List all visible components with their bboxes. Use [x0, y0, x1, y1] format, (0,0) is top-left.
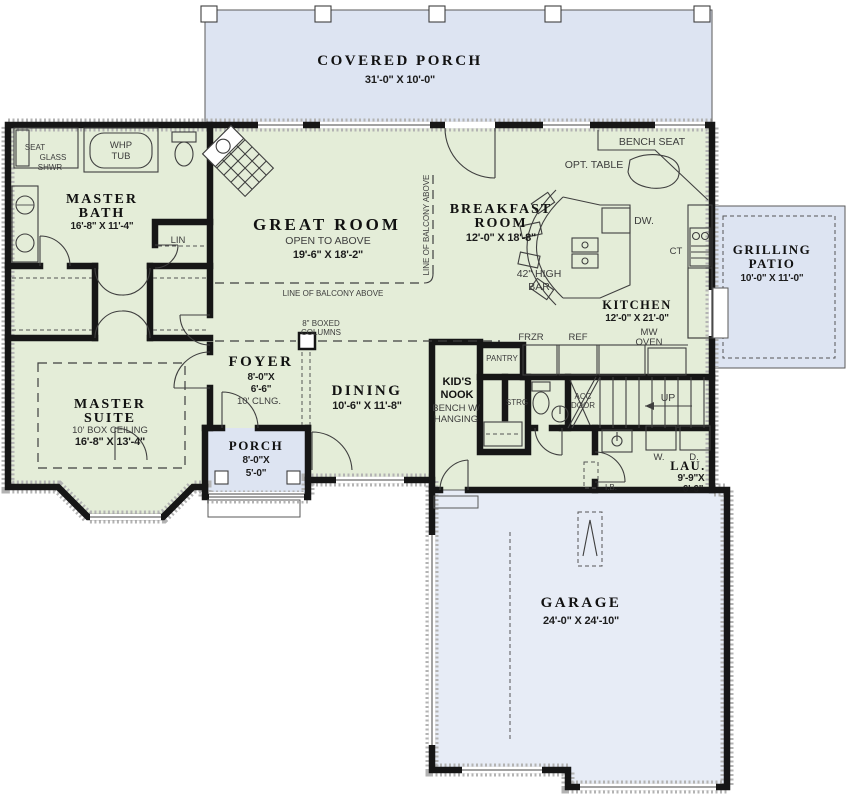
kitchen-dims: 12'-0" X 21'-0": [605, 313, 669, 324]
breakfast-dims: 12'-0" X 18'-8": [466, 232, 536, 244]
foyer-label: FOYER: [229, 354, 294, 370]
porch-dims-2: 5'-0": [246, 468, 267, 479]
dining-label: DINING: [332, 383, 403, 399]
acc-label-1: ACC: [575, 392, 592, 401]
up-label: UP: [661, 392, 676, 404]
foyer-dims-1: 8'-0"X: [247, 372, 275, 383]
covered-porch-label: COVERED PORCH: [317, 53, 482, 69]
strg-label: STRG: [506, 398, 528, 407]
garage-floor: [432, 490, 727, 787]
columns-label-1: 8" BOXED: [302, 319, 340, 328]
garage-label: GARAGE: [541, 595, 622, 611]
porch-dims-1: 8'-0"X: [242, 455, 270, 466]
garage-dims: 24'-0" X 24'-10": [543, 615, 619, 627]
frzr-label: FRZR: [518, 332, 543, 343]
foyer-dims-2: 6'-6": [251, 384, 272, 395]
ref-label: REF: [569, 332, 588, 343]
glass-label: GLASS: [40, 153, 67, 162]
laundry-dims-1: 9'-9"X: [677, 473, 705, 484]
dw-label: DW.: [634, 215, 654, 227]
tub-label: TUB: [112, 151, 131, 162]
floor-plan: COVERED PORCH 31'-0" X 10'-0" SEAT GLASS…: [0, 0, 850, 796]
kids-nook-note-1: BENCH W/: [432, 403, 480, 414]
porch-label: PORCH: [229, 438, 283, 453]
laundry-dims-2: 6'-6": [683, 484, 704, 495]
kitchen-label: KITCHEN: [602, 298, 672, 312]
great-room-dims: 19'-6" X 18'-2": [293, 249, 363, 261]
washer-label: W.: [653, 452, 664, 463]
master-bath-label-2: BATH: [79, 206, 126, 221]
columns-label-2: COLUMNS: [301, 328, 341, 337]
acc-label-2: DOOR: [571, 401, 595, 410]
ct-label: CT: [670, 246, 683, 257]
breakfast-label-2: ROOM: [474, 216, 527, 231]
floor-plan-canvas: COVERED PORCH 31'-0" X 10'-0" SEAT GLASS…: [0, 0, 850, 796]
balcony-label-v: LINE OF BALCONY ABOVE: [422, 175, 431, 276]
laundry-label: LAU.: [670, 459, 706, 473]
kids-nook-note-2: HANGING: [434, 414, 478, 425]
master-suite-note: 10' BOX CEILING: [72, 425, 148, 436]
master-bath-label-1: MASTER: [66, 192, 138, 207]
master-suite-dims: 16'-8" X 13'-4": [75, 436, 145, 448]
foyer-note: 10' CLNG.: [237, 396, 281, 407]
seat-label: SEAT: [25, 143, 45, 152]
bar-label-1: 42" HIGH: [517, 268, 562, 280]
master-suite-label-1: MASTER: [74, 397, 146, 412]
ib-label: I.B.: [605, 483, 617, 492]
whp-label: WHP: [110, 140, 132, 151]
master-bath-dims: 16'-8" X 11'-4": [71, 221, 134, 232]
master-suite-label-2: SUITE: [84, 411, 136, 426]
kids-nook-label-2: NOOK: [441, 389, 474, 401]
bench-seat-label: BENCH SEAT: [619, 136, 686, 148]
great-room-note: OPEN TO ABOVE: [285, 235, 370, 247]
covered-porch-dims: 31'-0" X 10'-0": [365, 74, 435, 86]
mw-label-2: OVEN: [636, 337, 663, 348]
grilling-dims: 10'-0" X 11'-0": [741, 273, 804, 284]
dining-dims: 10'-6" X 11'-8": [332, 400, 402, 412]
grilling-patio-floor: [713, 206, 845, 368]
shwr-label: SHWR: [38, 163, 63, 172]
lin-label: LIN: [171, 235, 186, 246]
balcony-label-h: LINE OF BALCONY ABOVE: [283, 289, 384, 298]
opt-table-label: OPT. TABLE: [565, 159, 624, 171]
grilling-label-2: PATIO: [749, 256, 796, 271]
kids-nook-label-1: KID'S: [443, 376, 472, 388]
great-room-label: GREAT ROOM: [253, 215, 401, 234]
bar-label-2: BAR: [528, 281, 550, 293]
pantry-label: PANTRY: [486, 354, 518, 363]
grilling-label-1: GRILLING: [733, 242, 811, 257]
breakfast-label-1: BREAKFAST: [450, 202, 553, 217]
